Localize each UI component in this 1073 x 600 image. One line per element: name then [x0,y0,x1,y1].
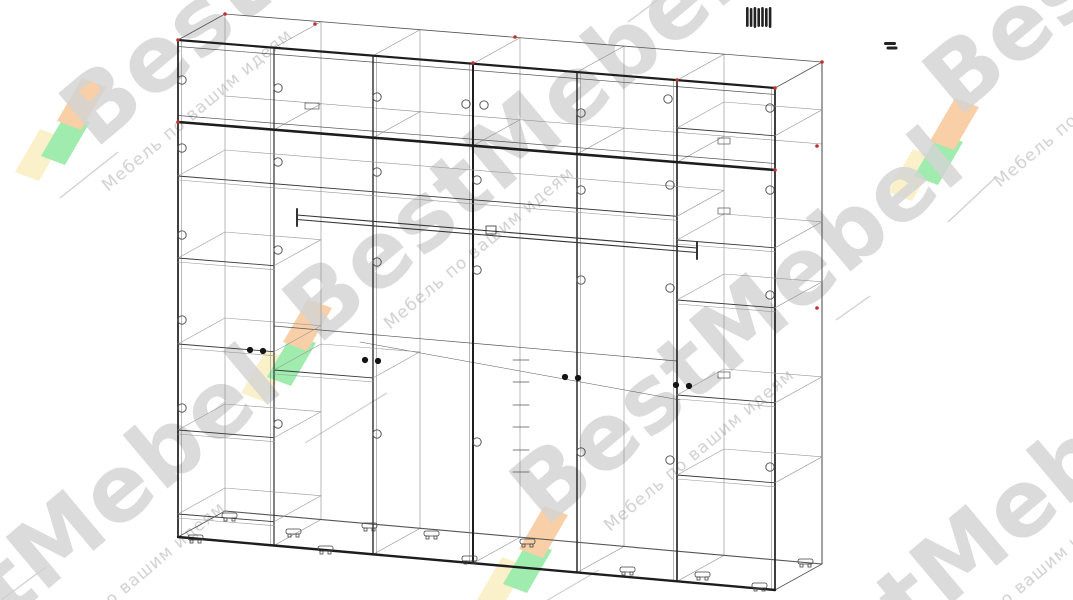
screw-pair-icon [884,42,898,50]
watermark-layer: BestMebel BestMebel BestMebel BestMebel … [0,0,1073,600]
furniture-technical-drawing: BestMebel BestMebel BestMebel BestMebel … [0,0,1073,600]
drawing-canvas: BestMebel BestMebel BestMebel BestMebel … [0,0,1073,600]
watermark-brand-text: BestMebel [903,0,1073,135]
dowel-pack-icon [746,7,771,28]
watermark-brand-text: BestMebel [710,339,1073,600]
